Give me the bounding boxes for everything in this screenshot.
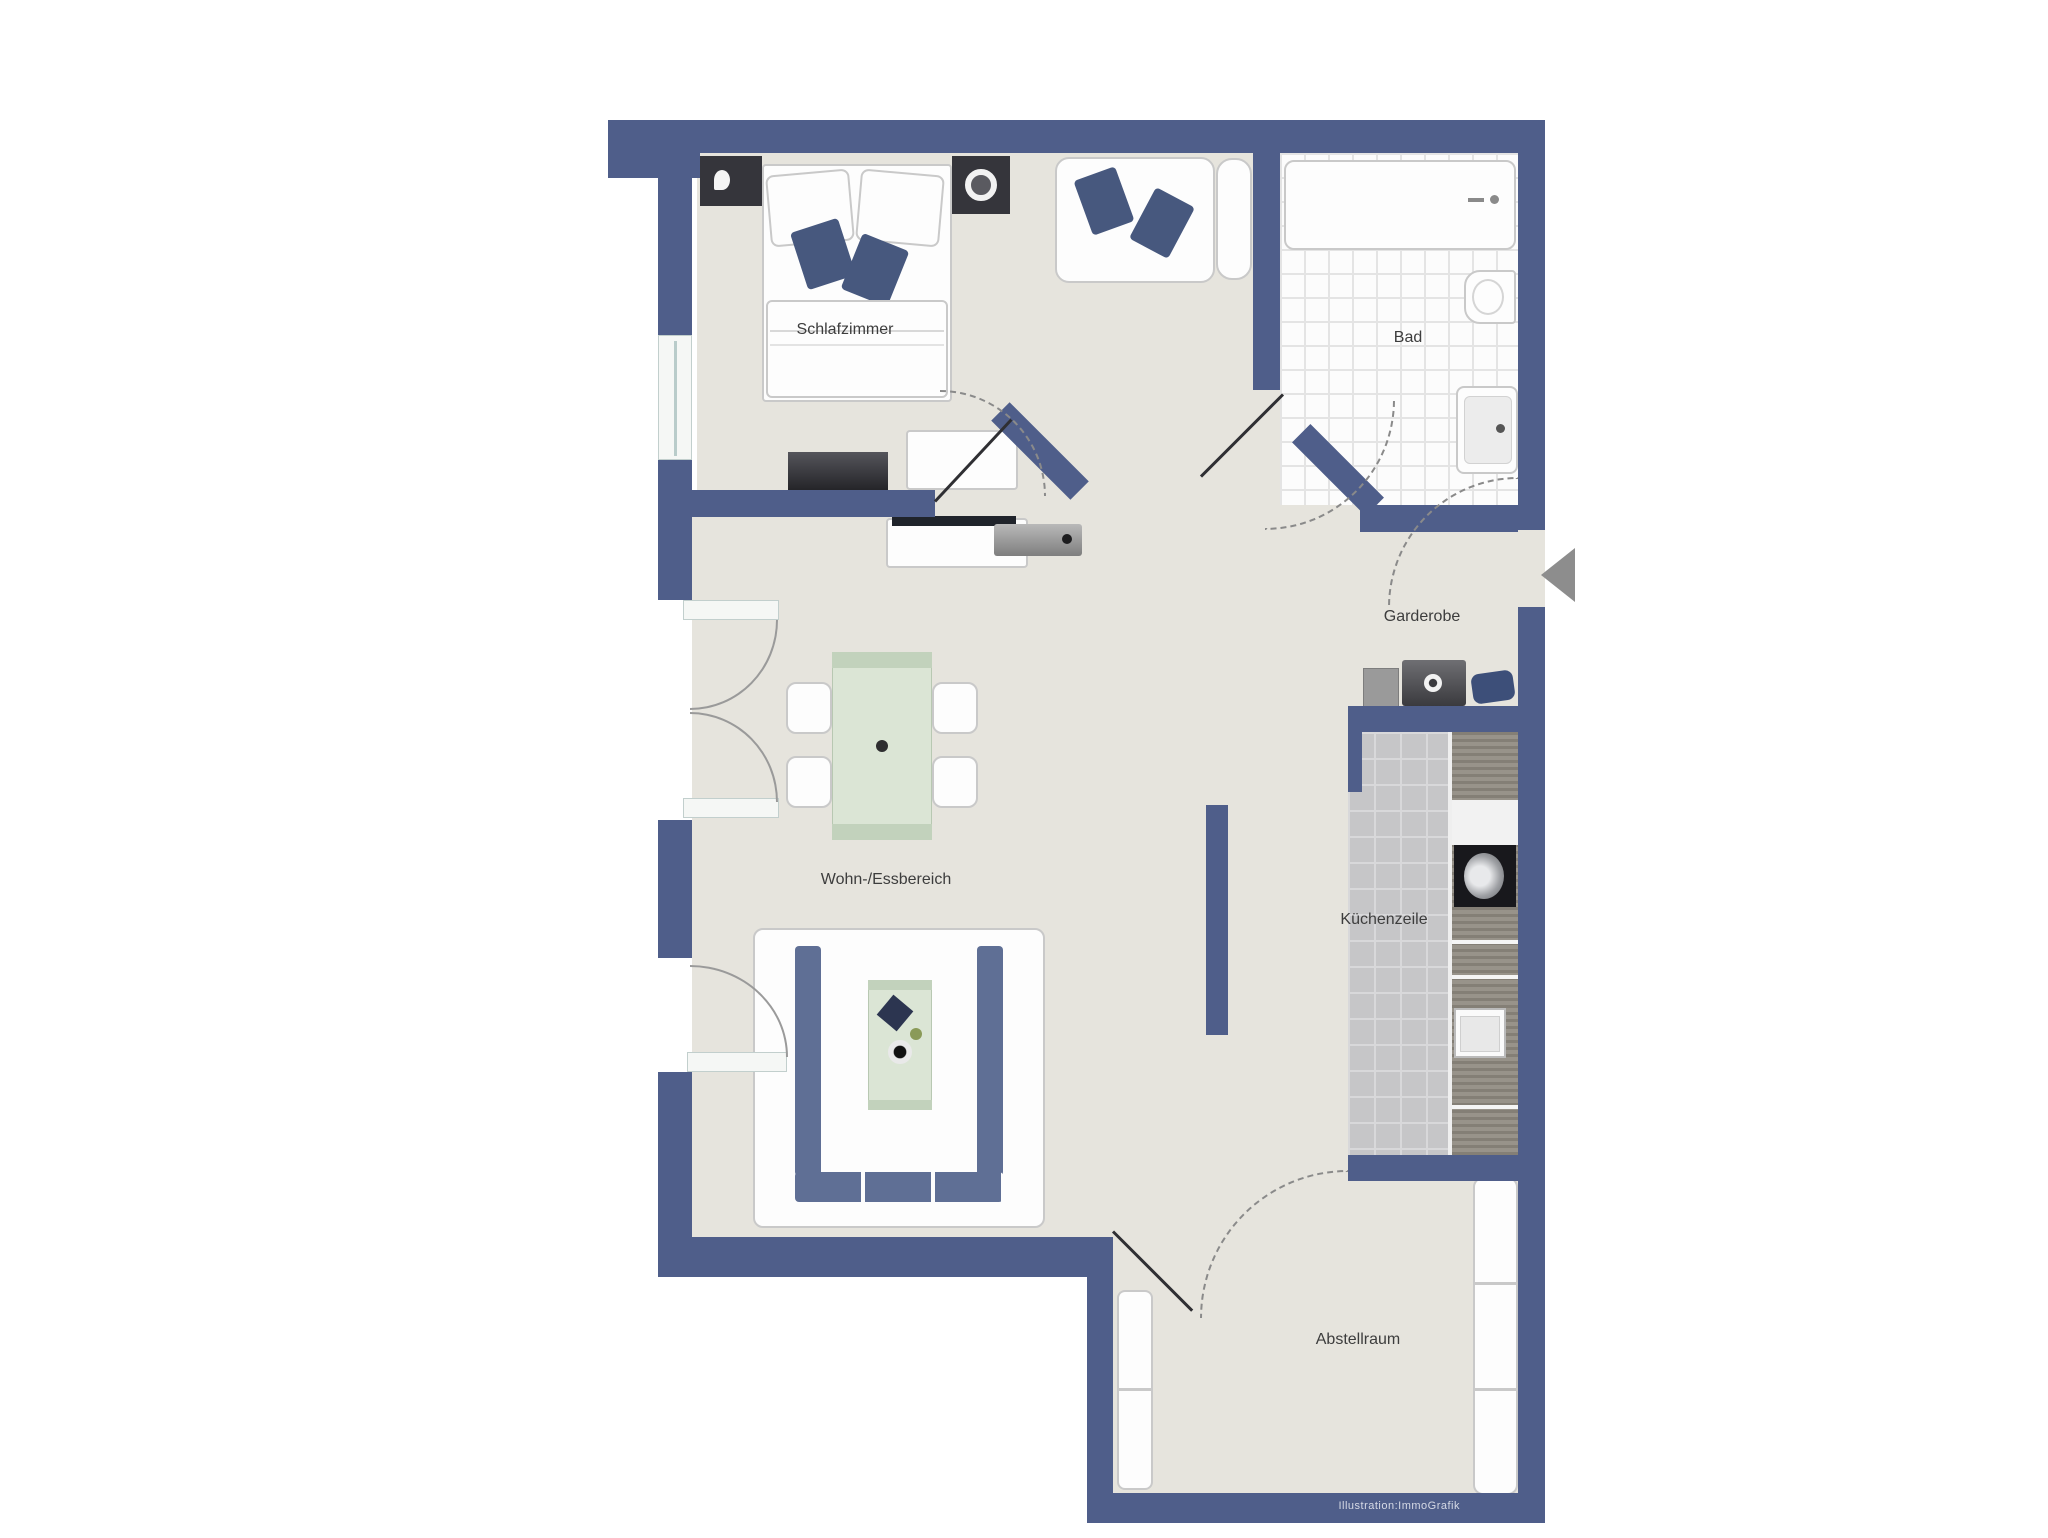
- speaker-ring-icon: [965, 169, 997, 201]
- room-label-wardrobe: Garderobe: [1384, 608, 1461, 626]
- bed-duvet: [766, 300, 948, 398]
- dining-chair: [786, 682, 832, 734]
- shelf-divider: [1475, 1388, 1516, 1391]
- balcony-door-leaf-top: [683, 600, 779, 620]
- shelf-divider: [1119, 1388, 1151, 1391]
- coffee-table-plant-icon: [910, 1028, 922, 1040]
- room-label-kitchenette: Küchenzeile: [1340, 911, 1427, 929]
- kitchen-counter-white-segment: [1452, 800, 1518, 845]
- wall-kitchen-bottom: [1348, 1155, 1518, 1181]
- table-centerpiece-icon: [876, 740, 888, 752]
- kettle-icon: [1470, 669, 1516, 705]
- sink-tap-icon: [1496, 424, 1505, 433]
- divider-wall: [1206, 805, 1228, 1035]
- room-label-bathroom: Bad: [1394, 329, 1422, 347]
- coffee-table-edge: [868, 1100, 932, 1110]
- nightstand: [700, 156, 762, 206]
- wall-bedroom-bottom: [692, 490, 935, 517]
- dining-table-edge: [832, 824, 932, 840]
- wall-right-upper: [1518, 120, 1545, 530]
- wall-left-segment: [658, 150, 692, 335]
- bathtub: [1284, 160, 1516, 250]
- illustration-credit: Illustration:ImmoGrafik: [1150, 1500, 1460, 1512]
- toilet-bowl-icon: [1472, 279, 1504, 315]
- bedroom-window: [658, 335, 692, 460]
- room-label-living-dining: Wohn-/Essbereich: [821, 871, 951, 889]
- kitchen-sink-bowl-icon: [1460, 1016, 1500, 1052]
- bedside-lamp-icon: [714, 170, 730, 190]
- wall-left-segment: [658, 460, 692, 600]
- wall-kitchen-top: [1348, 706, 1518, 732]
- sofa-cushion-right: [977, 946, 1003, 1176]
- dining-chair: [932, 682, 978, 734]
- sofa-cushion-bottom: [795, 1172, 1003, 1202]
- coffee-machine-dial-icon: [1424, 674, 1442, 692]
- wall-storage-left: [1087, 1237, 1113, 1523]
- wall-top: [608, 120, 1545, 153]
- dresser: [788, 452, 888, 492]
- wall-left-segment: [658, 1072, 692, 1243]
- counter-divider: [1452, 975, 1518, 979]
- counter-divider: [1452, 940, 1518, 944]
- media-player-knob-icon: [1062, 534, 1072, 544]
- bathtub-drain-icon: [1490, 195, 1499, 204]
- wall-right-lower: [1518, 607, 1545, 1523]
- floor-plan-canvas: Schlafzimmer Bad Garderobe Wohn-/Essbere…: [0, 0, 2048, 1538]
- lounge-bolster: [1216, 158, 1252, 280]
- dining-chair: [786, 756, 832, 808]
- small-appliance: [1363, 668, 1399, 708]
- lounge-chair: [1055, 157, 1215, 283]
- coffee-table-bowl-icon: [888, 1040, 912, 1064]
- sink-basin-icon: [1464, 396, 1512, 464]
- dining-table-edge: [832, 652, 932, 668]
- bathtub-faucet-icon: [1468, 198, 1484, 202]
- wall-kitchen-stub: [1348, 732, 1362, 792]
- duvet-fold-line: [770, 344, 944, 346]
- wall-bathroom-left: [1253, 153, 1280, 390]
- entry-direction-arrow: [1541, 548, 1575, 602]
- dining-chair: [932, 756, 978, 808]
- wall-bottom-living: [658, 1237, 1113, 1277]
- room-label-bedroom: Schlafzimmer: [797, 321, 894, 339]
- shelf-divider: [1475, 1282, 1516, 1285]
- coffee-table-edge: [868, 980, 932, 990]
- room-kitchen-tiles: [1348, 732, 1452, 1155]
- oven-door-icon: [1464, 853, 1504, 899]
- storage-shelf-right: [1473, 1177, 1518, 1495]
- wall-left-segment: [658, 820, 692, 958]
- sofa-cushion-left: [795, 946, 821, 1176]
- room-label-storage: Abstellraum: [1316, 1331, 1400, 1349]
- counter-divider: [1452, 1105, 1518, 1109]
